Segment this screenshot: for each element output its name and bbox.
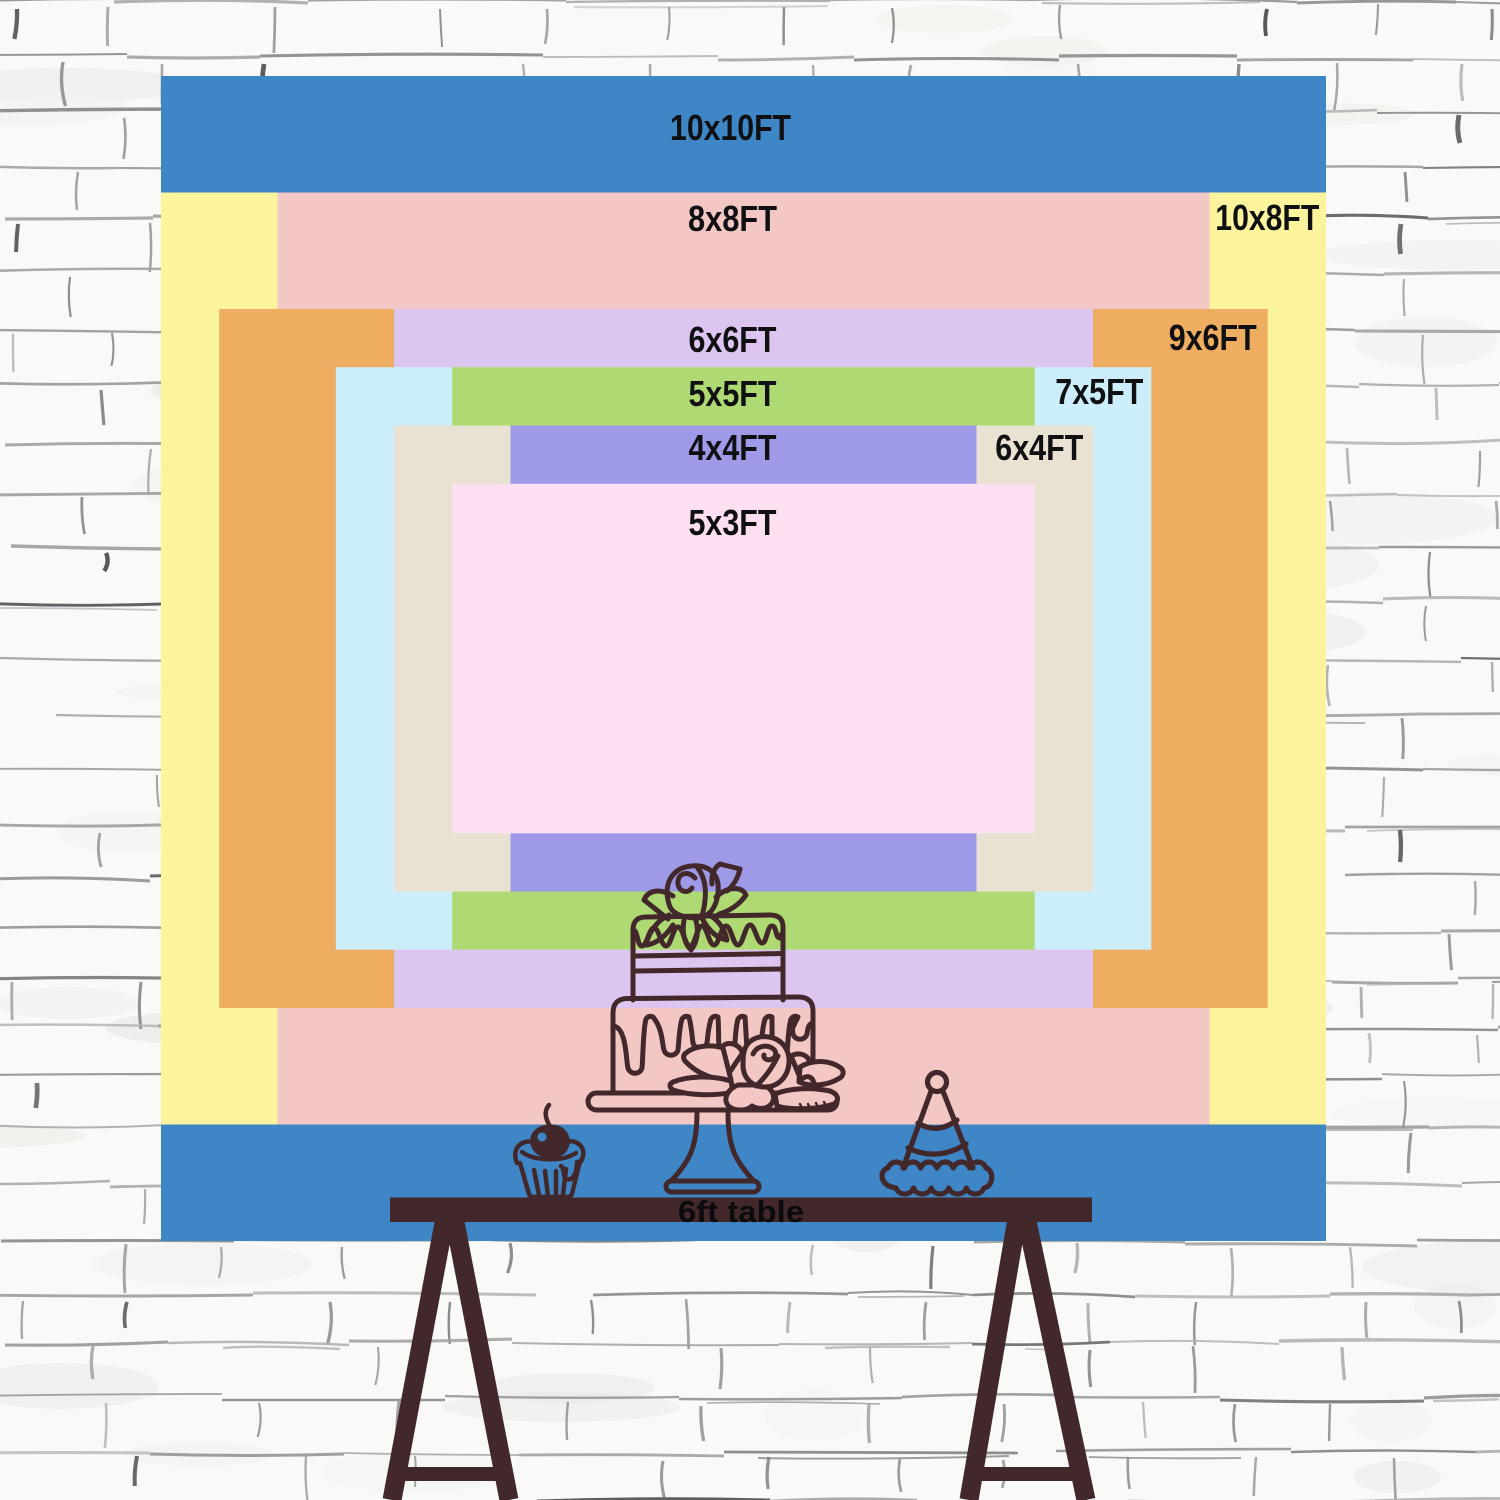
svg-text:6x6FT: 6x6FT xyxy=(689,319,777,360)
svg-text:8x8FT: 8x8FT xyxy=(688,198,777,239)
svg-text:10x10FT: 10x10FT xyxy=(670,107,791,148)
svg-text:6ft table: 6ft table xyxy=(678,1194,804,1229)
svg-text:7x5FT: 7x5FT xyxy=(1055,371,1143,412)
svg-text:5x3FT: 5x3FT xyxy=(689,502,777,543)
svg-text:9x6FT: 9x6FT xyxy=(1169,317,1257,358)
svg-text:4x4FT: 4x4FT xyxy=(689,427,777,468)
svg-text:10x8FT: 10x8FT xyxy=(1215,197,1319,238)
svg-text:6x4FT: 6x4FT xyxy=(995,427,1083,468)
svg-text:5x5FT: 5x5FT xyxy=(689,373,777,414)
